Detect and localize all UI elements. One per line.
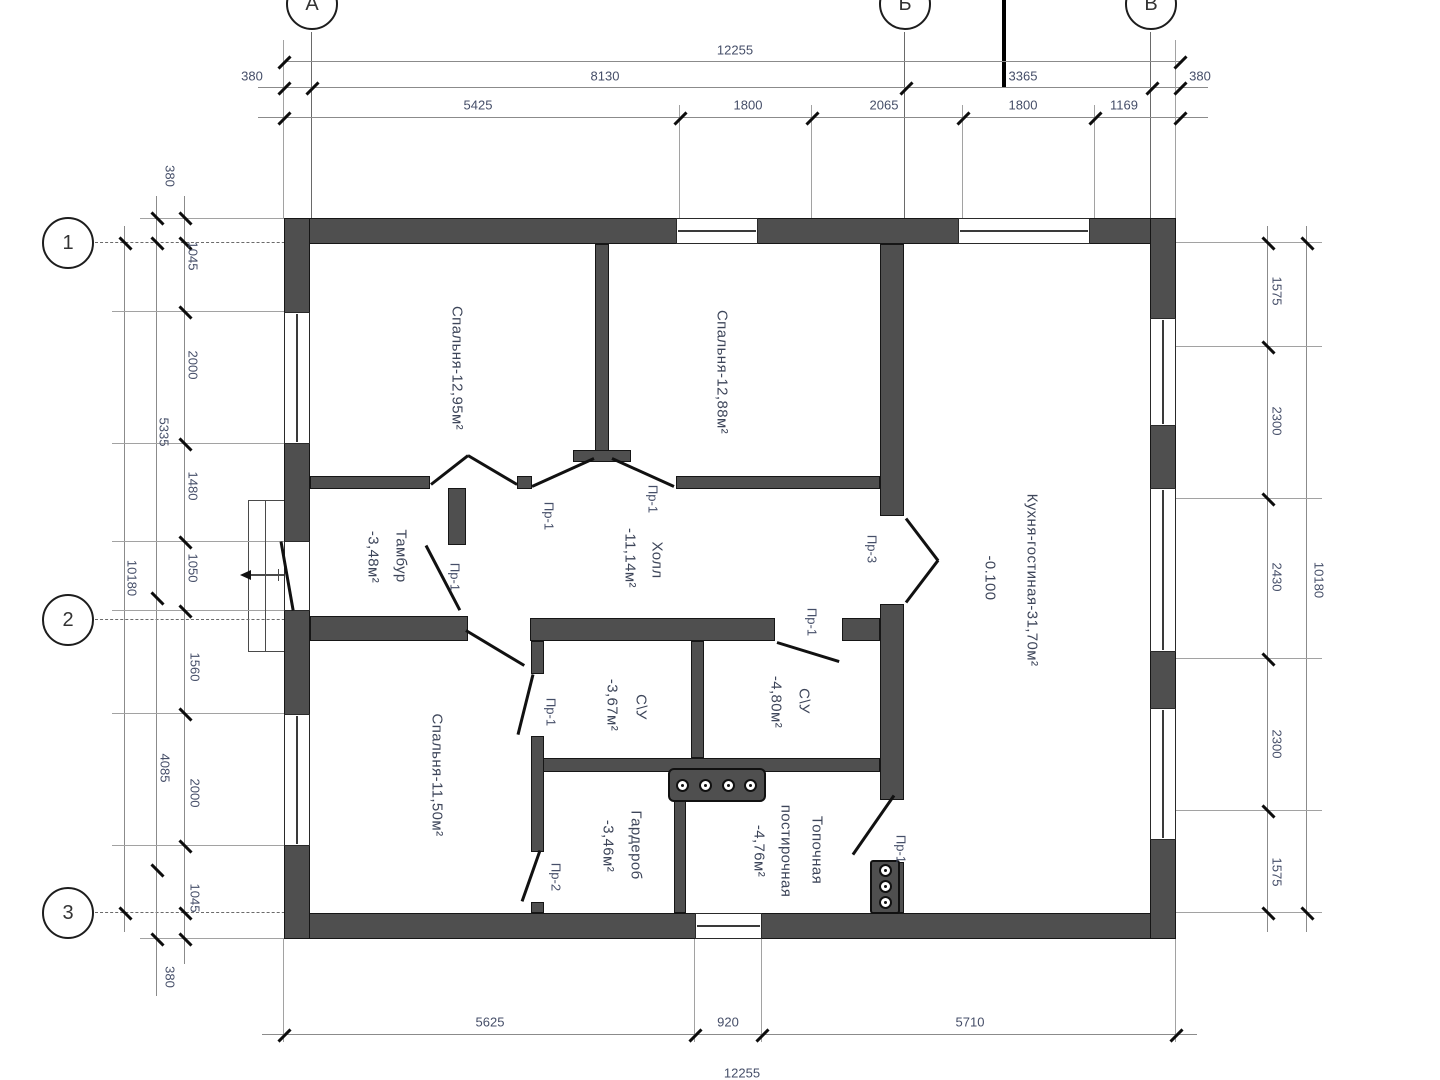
axis-circle-3: 3 [42,887,94,939]
dim-label: 1045 [188,884,203,913]
entry-arrow-cross-v [278,569,279,581]
axis-line-2 [95,619,310,620]
wall-bedroom-divider [595,244,609,456]
stray-axis-stub [1002,0,1006,88]
wall-bedroom3-right-a [531,641,544,674]
door-leaf-wc1 [517,674,535,735]
ext-line [1176,658,1322,659]
ext-line [112,443,284,444]
ext-line [1176,810,1322,811]
wall-wc-top-left [530,618,775,641]
window-top-1-glass [678,230,756,232]
ext-line [112,541,284,542]
porch-outline [248,500,285,652]
dim-tick [1261,236,1275,250]
dim-tick [1088,111,1102,125]
dim-tick [1169,1028,1183,1042]
dim-tick [178,437,192,451]
dim-tick [755,1028,769,1042]
axis-circle-b: Б [879,0,931,30]
dim-tick [150,591,164,605]
ext-line [112,311,284,312]
entry-arrow-head [240,570,251,580]
door-label-pr1-bedroom2: Пр-1 [646,485,661,513]
dim-tick [150,863,164,877]
door-leaf-wc2 [777,641,840,663]
axis-label-3: 3 [62,902,73,925]
dim-label: 380 [241,69,263,84]
dim-label: 5335 [157,418,172,447]
dim-tick [277,55,291,69]
ext-line [1176,912,1322,913]
dim-line-right-total [1306,226,1307,932]
terrace-door-glass [697,925,760,927]
ext-line [1175,939,1176,1042]
dim-tick [118,236,132,250]
wall-bedroom3-right-b [531,736,544,852]
wall-hall-top-right [676,476,880,489]
room-label-tambour-area: -3,48м² [365,531,382,583]
dim-label: 380 [1189,69,1211,84]
axis-label-1: 1 [62,232,73,255]
appliance-knob-3 [722,779,735,792]
dim-label: 2300 [1270,407,1285,436]
axis-line-a [311,32,312,218]
dim-tick [1300,906,1314,920]
dim-label-right-total: 10180 [1312,562,1327,598]
door-leaf-utility [852,795,896,856]
dim-label: 8130 [591,69,620,84]
door-leaf-kitchen-a [905,518,940,562]
room-label-wc1-name: С\У [633,694,650,720]
dim-tick [118,906,132,920]
room-label-utility-name: Топочная [809,816,826,884]
room-label-hall-name: Холл [649,542,666,579]
room-label-kitchen-level: -0.100 [982,556,999,601]
door-leaf-bedroom1-b [467,454,518,486]
room-label-bedroom3: Спальня-11,50м² [429,714,446,837]
dim-label: 1800 [734,98,763,113]
window-left-1-glass [296,314,298,442]
dim-tick [277,111,291,125]
dim-label: 2300 [1270,730,1285,759]
wall-tambour-right [448,488,466,545]
wall-bedroom-divider-foot [573,450,631,462]
door-label-pr3-kitchen: Пр-3 [865,535,880,563]
dim-label: 1045 [186,242,201,271]
dim-tick [277,1028,291,1042]
axis-circle-a: А [286,0,338,30]
door-label-pr2-wardrobe: Пр-2 [549,863,564,891]
door-label-pr1-bedroom1: Пр-1 [542,502,557,530]
dim-tick [1261,906,1275,920]
boiler-knob-1 [879,864,892,877]
wall-wc-divider [691,641,704,758]
door-leaf-kitchen-b [905,559,940,603]
dim-tick [1261,340,1275,354]
dim-tick [956,111,970,125]
dim-label-bottom-total: 12255 [724,1066,760,1080]
axis-circle-2: 2 [42,594,94,646]
door-leaf-bedroom2-b [611,457,674,488]
dim-label: 1800 [1009,98,1038,113]
dim-tick [899,81,913,95]
ext-line [140,218,284,219]
dim-tick [1261,804,1275,818]
dim-label: 3365 [1009,69,1038,84]
dim-tick [178,305,192,319]
dim-tick [673,111,687,125]
dim-label: 1050 [186,554,201,583]
room-label-kitchen: Кухня-гостиная-31,70м² [1024,494,1041,667]
appliance-knob-4 [744,779,757,792]
axis-label-a: А [305,0,318,16]
wall-wc-top-right [842,618,880,641]
boiler-knob-3 [879,896,892,909]
room-label-tambour-name: Тамбур [393,529,410,582]
wall-hall-top-stub [517,476,532,489]
door-leaf-wardrobe [521,850,542,902]
door-leaf-bedroom3 [465,629,525,667]
dim-tick [178,604,192,618]
ext-line [1176,346,1322,347]
dim-tick [1261,492,1275,506]
dim-tick [277,81,291,95]
dim-label: 1575 [1270,858,1285,887]
dim-line-right-inner [1267,226,1268,932]
room-label-wc2-name: С\У [796,688,813,714]
dim-label: 2000 [188,779,203,808]
wall-tambour-bottom [310,616,468,641]
ext-line [283,939,284,1042]
room-label-utility-name2: постирочная [778,805,795,898]
dim-tick [305,81,319,95]
window-left-2-glass [296,716,298,844]
floor-plan-drawing: А Б В 1 2 3 [0,0,1440,1080]
dim-label: 1560 [188,653,203,682]
dim-tick [688,1028,702,1042]
dim-label-top-total: 12255 [717,43,753,58]
door-leaf-bedroom2-a [531,457,594,488]
axis-circle-1: 1 [42,217,94,269]
axis-line-v [1150,32,1151,218]
wall-bedroom3-right-c [531,902,544,913]
dim-tick [150,932,164,946]
boiler-knob-2 [879,880,892,893]
axis-circle-v: В [1125,0,1177,30]
dim-label: 5425 [464,98,493,113]
dim-tick [178,535,192,549]
porch-step-line [265,500,266,652]
dim-label: 2065 [870,98,899,113]
room-label-bedroom1: Спальня-12,95м² [449,306,466,430]
wall-kitchen-divider-middle [880,604,904,800]
axis-label-b: Б [898,0,911,16]
dim-tick [1300,236,1314,250]
dim-label: 2430 [1270,563,1285,592]
wall-hall-top-left [310,476,430,489]
dim-line-top-total [284,61,1181,62]
ext-line [283,40,284,218]
door-label-pr1-wc2: Пр-1 [805,608,820,636]
ext-line [112,845,284,846]
dim-line-top-row2 [258,87,1208,88]
dim-label: 1169 [1110,98,1138,113]
room-label-wardrobe-area: -3,46м² [600,820,617,872]
dim-label: 380 [163,966,178,988]
dim-label-left-total: 10180 [125,560,140,596]
dim-tick [178,839,192,853]
door-label-pr1-tambour: Пр-1 [448,563,463,591]
window-right-3-glass [1162,710,1164,838]
dim-label: 5710 [956,1015,985,1030]
dim-line-bottom [262,1034,1197,1035]
door-label-pr1-wc1: Пр-1 [544,698,559,726]
window-right-1-glass [1162,320,1164,424]
dim-tick [150,236,164,250]
ext-line [112,610,284,611]
axis-label-v: В [1144,0,1157,16]
room-label-wardrobe-name: Гардероб [628,810,645,879]
door-label-pr1-utility: Пр-1 [894,835,909,863]
dim-label: 920 [717,1015,739,1030]
axis-label-2: 2 [62,609,73,632]
ext-line [112,713,284,714]
dim-label: 1480 [186,472,201,501]
room-label-wc1-area: -3,67м² [604,679,621,731]
room-label-hall-area: -11,14м² [622,528,639,588]
dim-label: 380 [163,165,178,187]
appliance-knob-1 [676,779,689,792]
appliance-knob-2 [699,779,712,792]
axis-line-b [904,32,905,218]
dim-tick [1145,81,1159,95]
dim-tick [1261,652,1275,666]
dim-label: 1575 [1270,277,1285,306]
room-label-bedroom2: Спальня-12,88м² [714,310,731,434]
ext-line [694,939,695,1042]
room-label-utility-area: -4,76м² [751,825,768,877]
room-label-wc2-area: -4,80м² [768,676,785,728]
window-right-2-glass [1162,490,1164,650]
dim-tick [805,111,819,125]
dim-tick [178,932,192,946]
dim-label: 5625 [476,1015,505,1030]
dim-label: 2000 [186,351,201,380]
ext-line [1176,498,1322,499]
dim-tick [178,707,192,721]
door-leaf-bedroom1-a [430,454,469,485]
window-top-2-glass [960,230,1088,232]
dim-line-top-row3 [258,117,1208,118]
dim-label: 4085 [158,754,173,783]
wall-kitchen-divider-upper [880,244,904,516]
ext-line [1176,242,1322,243]
ext-line [761,939,762,1042]
ext-line [140,938,284,939]
